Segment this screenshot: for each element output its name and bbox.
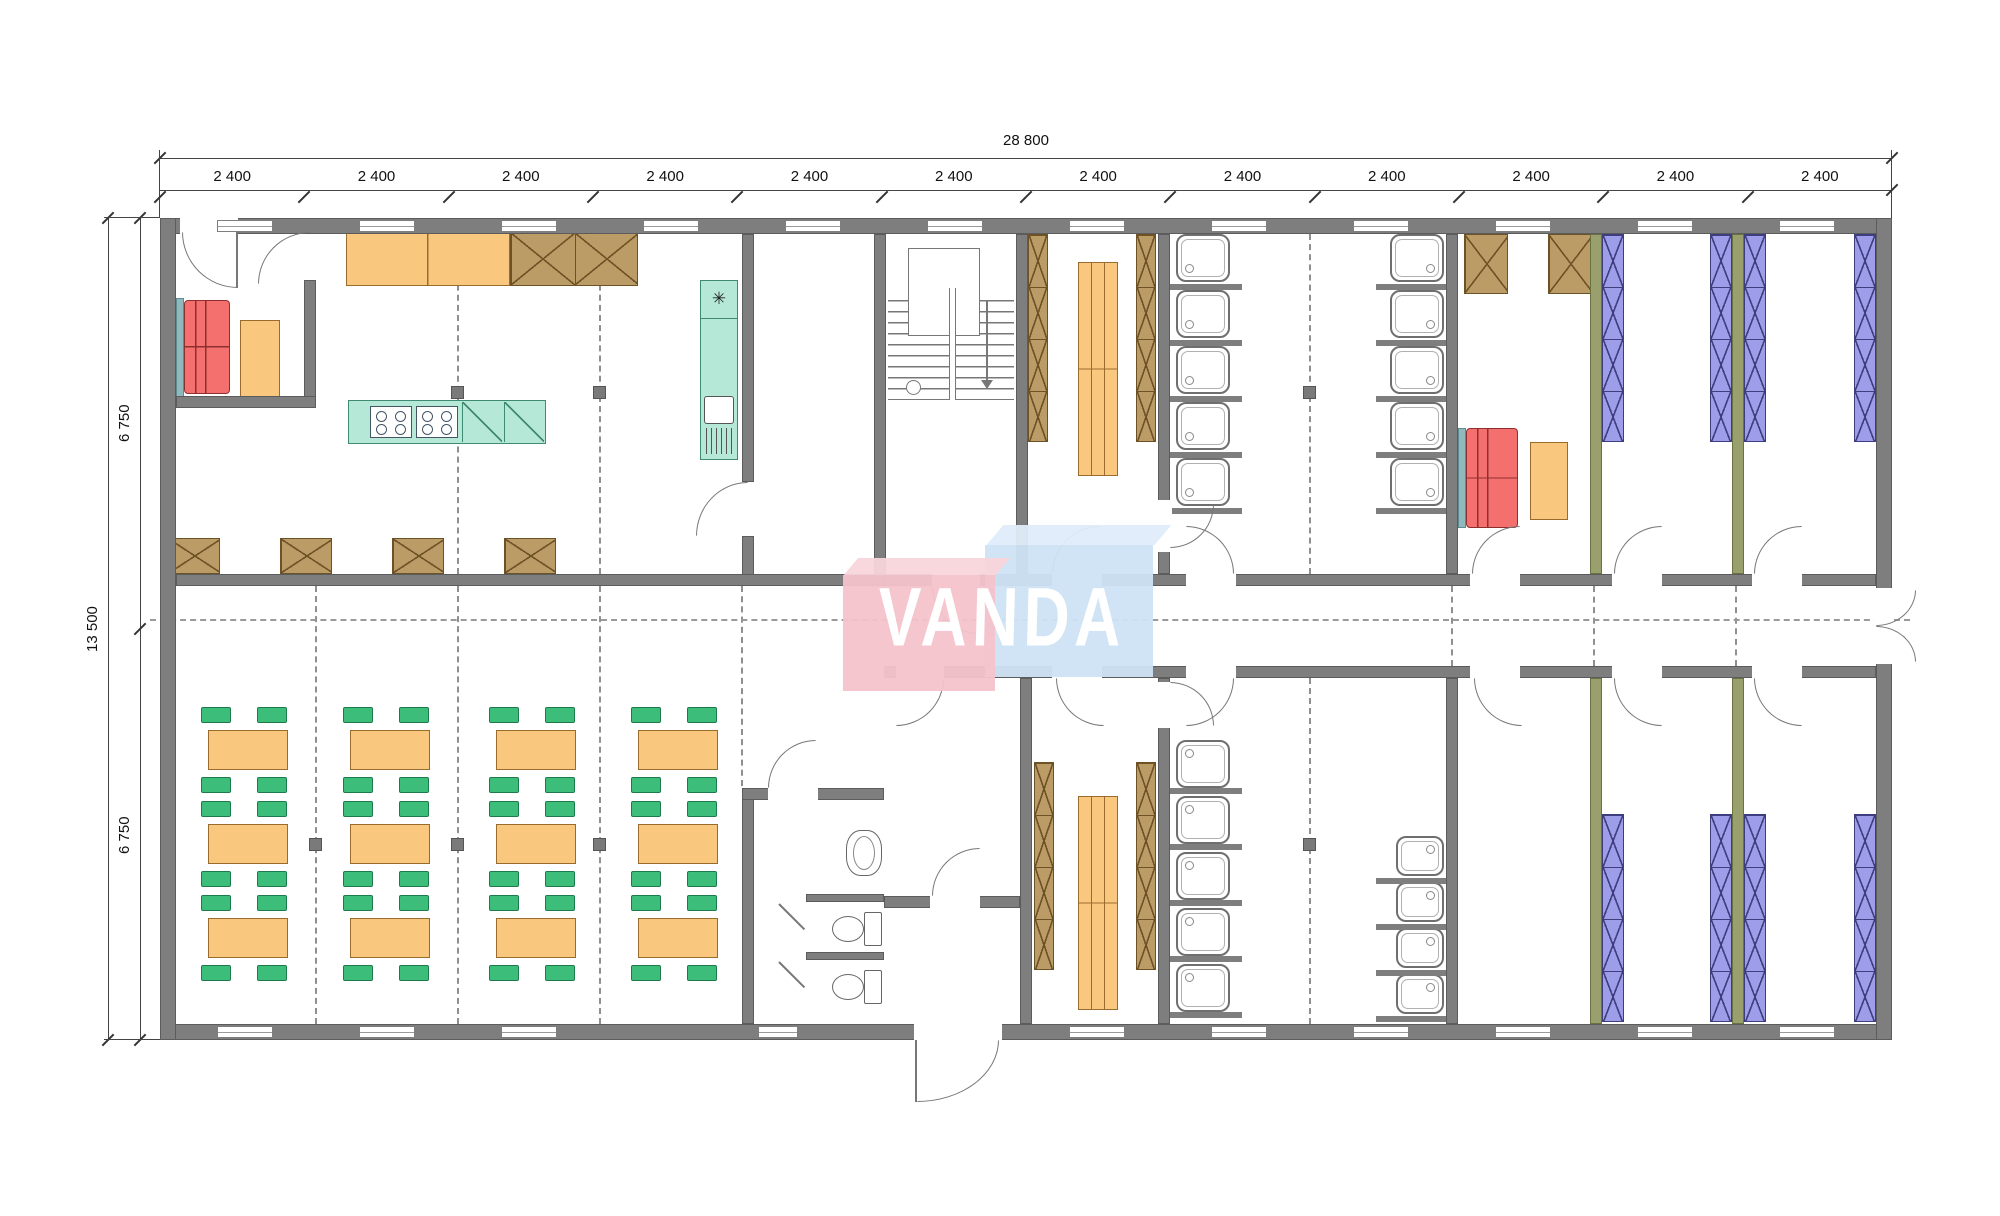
dining-table: [496, 730, 576, 770]
grid-line: [599, 586, 601, 1024]
dining-table-unit: [623, 801, 733, 887]
burner-icon: [395, 424, 406, 435]
wall-dorm-top-2: [1732, 234, 1744, 574]
chair: [687, 871, 717, 887]
shower-partition: [1158, 340, 1242, 346]
grid-line: [1309, 678, 1311, 1024]
dining-table: [350, 918, 430, 958]
locker-column: [1028, 234, 1048, 442]
column-marker: [451, 386, 464, 399]
window: [1637, 220, 1693, 232]
chair: [257, 801, 287, 817]
dim-top-segments: 2 400 2 400 2 400 2 400 2 400 2 400 2 40…: [160, 168, 1892, 191]
chair: [257, 895, 287, 911]
shower-partition: [1158, 284, 1242, 290]
dim-left-total: 13 500: [84, 549, 101, 709]
door-opening: [1612, 572, 1662, 588]
exterior-wall-left: [160, 218, 176, 1040]
chair: [399, 777, 429, 793]
chair: [201, 707, 231, 723]
chair: [489, 965, 519, 981]
window: [217, 220, 273, 232]
chair: [489, 801, 519, 817]
chair: [489, 707, 519, 723]
wall-kitchen-dining-separator: [176, 574, 884, 586]
toilet-tank: [864, 970, 882, 1004]
snowflake-icon: ✳: [712, 289, 726, 308]
window: [1211, 1026, 1267, 1038]
door-arc-vestibule-mid: [932, 848, 980, 896]
window: [1211, 220, 1267, 232]
freezer-compartment: ✳: [700, 280, 738, 319]
shower-partition: [1158, 396, 1242, 402]
chair: [201, 895, 231, 911]
shower-stall: [1390, 458, 1444, 506]
window: [1495, 220, 1551, 232]
dining-table: [496, 824, 576, 864]
chair: [201, 801, 231, 817]
shower-stall: [1390, 290, 1444, 338]
chair: [687, 777, 717, 793]
window: [643, 220, 699, 232]
chair: [343, 707, 373, 723]
grid-line: [1735, 586, 1737, 666]
window: [1353, 220, 1409, 232]
door-opening: [1752, 572, 1802, 588]
door-opening: [914, 1022, 1002, 1042]
burner-icon: [441, 424, 452, 435]
door-opening: [930, 894, 980, 910]
shower-partition: [1158, 788, 1242, 794]
toilet-tank: [864, 912, 882, 946]
door-arc-washroom: [768, 740, 816, 788]
dim-segment: 2 400: [1026, 168, 1170, 190]
wall-shower-bottom-right: [1446, 678, 1458, 1024]
column-marker: [593, 838, 606, 851]
door-arc-room-bottom: [1474, 678, 1522, 726]
door-arc-lounge: [1472, 526, 1520, 574]
bunk-bed-column: [1744, 234, 1766, 442]
dining-table-unit: [335, 707, 445, 793]
dim-segment: 2 400: [1170, 168, 1314, 190]
dining-table-unit: [481, 895, 591, 981]
stair-railing: [908, 248, 980, 336]
chair: [631, 895, 661, 911]
dim-segment: 2 400: [882, 168, 1026, 190]
wall-wc-divider-1: [806, 894, 884, 902]
shower-stall: [1396, 974, 1444, 1014]
dim-segment: 2 400: [593, 168, 737, 190]
door-opening: [768, 786, 818, 802]
wall-stair-right: [1016, 234, 1028, 574]
dishwasher: [462, 402, 502, 442]
accent-wall: [176, 298, 184, 400]
washbasin: [846, 830, 882, 876]
exterior-wall-top: [160, 218, 1892, 234]
watermark-text: VANDA: [851, 569, 1154, 665]
chair: [343, 777, 373, 793]
column-marker: [309, 838, 322, 851]
dim-segment: 2 400: [1315, 168, 1459, 190]
door-arc-changing-bottom: [1056, 678, 1104, 726]
locker-column: [1034, 762, 1054, 970]
window: [359, 220, 415, 232]
door-arc-exterior-south: [917, 1040, 999, 1102]
chair: [631, 777, 661, 793]
dining-table: [208, 918, 288, 958]
kitchen-crate: [504, 538, 556, 574]
shower-stall: [1390, 402, 1444, 450]
shower-stall: [1396, 882, 1444, 922]
stair-divider: [949, 288, 956, 400]
chair: [399, 871, 429, 887]
locker-box: [1464, 234, 1508, 294]
window: [1069, 220, 1125, 232]
dim-segment: 2 400: [1603, 168, 1747, 190]
chair: [343, 895, 373, 911]
chair: [545, 895, 575, 911]
burner-icon: [376, 424, 387, 435]
chair: [545, 871, 575, 887]
window: [1353, 1026, 1409, 1038]
shower-stall: [1176, 964, 1230, 1012]
bunk-bed-column: [1710, 814, 1732, 1022]
dim-left-total-line: [108, 218, 109, 1040]
chair: [399, 707, 429, 723]
grid-line: [315, 586, 317, 1024]
column-marker: [1303, 838, 1316, 851]
shower-partition: [1158, 956, 1242, 962]
chair: [489, 895, 519, 911]
dim-ext-line: [104, 1039, 160, 1040]
door-leaf: [915, 1040, 917, 1102]
window: [501, 1026, 557, 1038]
chair: [399, 801, 429, 817]
door-leaf: [236, 232, 238, 288]
burner-icon: [422, 424, 433, 435]
dining-table: [208, 824, 288, 864]
chair: [399, 965, 429, 981]
dining-table: [350, 730, 430, 770]
wc-door-leaf: [778, 903, 805, 930]
dim-ext-line: [104, 217, 160, 218]
column-marker: [451, 838, 464, 851]
door-opening: [1470, 572, 1520, 588]
chair: [545, 777, 575, 793]
shower-partition: [1158, 844, 1242, 850]
chair: [545, 707, 575, 723]
bunk-bed-column: [1854, 234, 1876, 442]
grid-line: [1593, 586, 1595, 666]
chair: [687, 965, 717, 981]
shower-stall: [1176, 852, 1230, 900]
burner-icon: [395, 411, 406, 422]
kitchen-cabinet-crossed: [510, 232, 638, 286]
chair: [257, 707, 287, 723]
stair-down-arrow: [986, 300, 988, 382]
dining-table-unit: [193, 895, 303, 981]
chair: [687, 801, 717, 817]
window: [758, 1026, 798, 1038]
wall-dorm-top-1: [1590, 234, 1602, 574]
door-arc-dorm1-top: [1614, 526, 1662, 574]
bunk-bed-column: [1744, 814, 1766, 1022]
window: [1637, 1026, 1693, 1038]
dim-left-segment: 6 750: [116, 343, 133, 503]
stove: [416, 406, 458, 438]
chair: [631, 707, 661, 723]
wall-wc-divider-2: [806, 952, 884, 960]
toilet-bowl: [832, 916, 864, 942]
bunk-bed-column: [1710, 234, 1732, 442]
bunk-bed-column: [1602, 814, 1624, 1022]
window: [927, 220, 983, 232]
wall-changing-bottom: [1158, 678, 1170, 1024]
wall-kitchen-right-upper: [742, 234, 754, 482]
shower-stall: [1176, 740, 1230, 788]
burner-icon: [441, 411, 452, 422]
dining-table: [350, 824, 430, 864]
dim-top-total-line: [160, 158, 1892, 159]
chair: [631, 801, 661, 817]
dim-left-segment: 6 750: [116, 755, 133, 915]
dim-top-total: 28 800: [160, 132, 1892, 149]
shower-stall: [1396, 836, 1444, 876]
dining-table: [638, 824, 718, 864]
sofa: [184, 300, 230, 394]
locker-column: [1136, 234, 1156, 442]
dining-table-unit: [481, 801, 591, 887]
dining-table: [208, 730, 288, 770]
shower-stall: [1396, 928, 1444, 968]
window: [501, 220, 557, 232]
chair: [201, 965, 231, 981]
chair: [201, 777, 231, 793]
wc-door-leaf: [778, 961, 805, 988]
kitchen-crate: [392, 538, 444, 574]
chair: [545, 801, 575, 817]
sink-drainer: [706, 428, 732, 454]
grid-line: [1309, 234, 1311, 574]
chair: [489, 871, 519, 887]
shower-stall: [1176, 458, 1230, 506]
bunk-bed-column: [1854, 814, 1876, 1022]
chair: [687, 895, 717, 911]
chair: [257, 777, 287, 793]
dim-segment: 2 400: [449, 168, 593, 190]
dim-segment: 2 400: [737, 168, 881, 190]
shower-partition: [1158, 1012, 1242, 1018]
bench: [1078, 796, 1118, 1010]
door-arc-dorm1-bottom: [1614, 678, 1662, 726]
stair-start-marker: [906, 380, 921, 395]
wall-entry-right: [304, 280, 316, 408]
dining-table: [638, 730, 718, 770]
door-arc-dorm2-bottom: [1754, 678, 1802, 726]
door-arc-dorm2-top: [1754, 526, 1802, 574]
door-arc-corridor-exit-top: [1876, 590, 1916, 626]
chair: [257, 871, 287, 887]
column-marker: [1303, 386, 1316, 399]
kitchen-counter: [346, 232, 510, 286]
shower-stall: [1176, 908, 1230, 956]
dishwasher: [504, 402, 544, 442]
side-table: [1530, 442, 1568, 520]
grid-line: [1451, 586, 1453, 666]
kitchen-crate: [280, 538, 332, 574]
wall-shower-top-right: [1446, 234, 1458, 574]
chair: [399, 895, 429, 911]
window: [359, 1026, 415, 1038]
bunk-bed-column: [1602, 234, 1624, 442]
chair: [343, 965, 373, 981]
window: [1069, 1026, 1125, 1038]
column-marker: [593, 386, 606, 399]
wall-entry-bottom: [176, 396, 316, 408]
shower-stall: [1390, 346, 1444, 394]
door-arc-entry-kitchen: [258, 232, 310, 284]
door-opening: [1186, 572, 1236, 588]
wall-washroom-left: [742, 788, 754, 1024]
chair: [257, 965, 287, 981]
sofa: [1466, 428, 1518, 528]
dim-segment: 2 400: [160, 168, 304, 190]
toilet-bowl: [832, 974, 864, 1000]
chair: [489, 777, 519, 793]
chair: [201, 871, 231, 887]
shower-stall: [1176, 346, 1230, 394]
door-arc-kitchen-store: [696, 482, 748, 536]
door-arc-entry: [182, 232, 238, 288]
wall-dorm-bottom-2: [1732, 678, 1744, 1024]
chair: [545, 965, 575, 981]
burner-icon: [376, 411, 387, 422]
dim-segment: 2 400: [1748, 168, 1892, 190]
shower-stall: [1176, 234, 1230, 282]
chair: [343, 871, 373, 887]
window: [1495, 1026, 1551, 1038]
wall-stair-left: [874, 234, 886, 574]
chair: [343, 801, 373, 817]
kitchen-sink: [704, 396, 734, 424]
dining-table-unit: [623, 707, 733, 793]
dining-table-unit: [335, 895, 445, 981]
grid-line: [457, 586, 459, 1024]
chair: [631, 871, 661, 887]
stove: [370, 406, 412, 438]
locker-column: [1136, 762, 1156, 970]
burner-icon: [422, 411, 433, 422]
wall-dorm-bottom-1: [1590, 678, 1602, 1024]
window: [1779, 1026, 1835, 1038]
dining-table-unit: [481, 707, 591, 793]
chair: [631, 965, 661, 981]
shower-stall: [1390, 234, 1444, 282]
chair: [687, 707, 717, 723]
window: [217, 1026, 273, 1038]
side-table: [240, 320, 280, 398]
wall-vestibule-right: [1020, 678, 1032, 1024]
dining-table: [638, 918, 718, 958]
accent-wall: [1458, 428, 1466, 528]
floor-plan: 28 800 2 400 2 400 2 400 2 400 2 400 2 4…: [0, 0, 2000, 1216]
dining-table-unit: [193, 801, 303, 887]
dim-segment: 2 400: [1459, 168, 1603, 190]
bench: [1078, 262, 1118, 476]
exterior-wall-bottom: [160, 1024, 1892, 1040]
window: [785, 220, 841, 232]
window: [1779, 220, 1835, 232]
grid-line: [741, 586, 743, 786]
shower-partition: [1158, 452, 1242, 458]
dining-table-unit: [193, 707, 303, 793]
dim-segment: 2 400: [304, 168, 448, 190]
shower-stall: [1176, 796, 1230, 844]
door-arc-corridor-exit-bottom: [1876, 626, 1916, 662]
shower-stall: [1176, 402, 1230, 450]
dining-table-unit: [335, 801, 445, 887]
dining-table-unit: [623, 895, 733, 981]
locker-box: [1548, 234, 1592, 294]
shower-stall: [1176, 290, 1230, 338]
shower-partition: [1158, 900, 1242, 906]
dining-table: [496, 918, 576, 958]
